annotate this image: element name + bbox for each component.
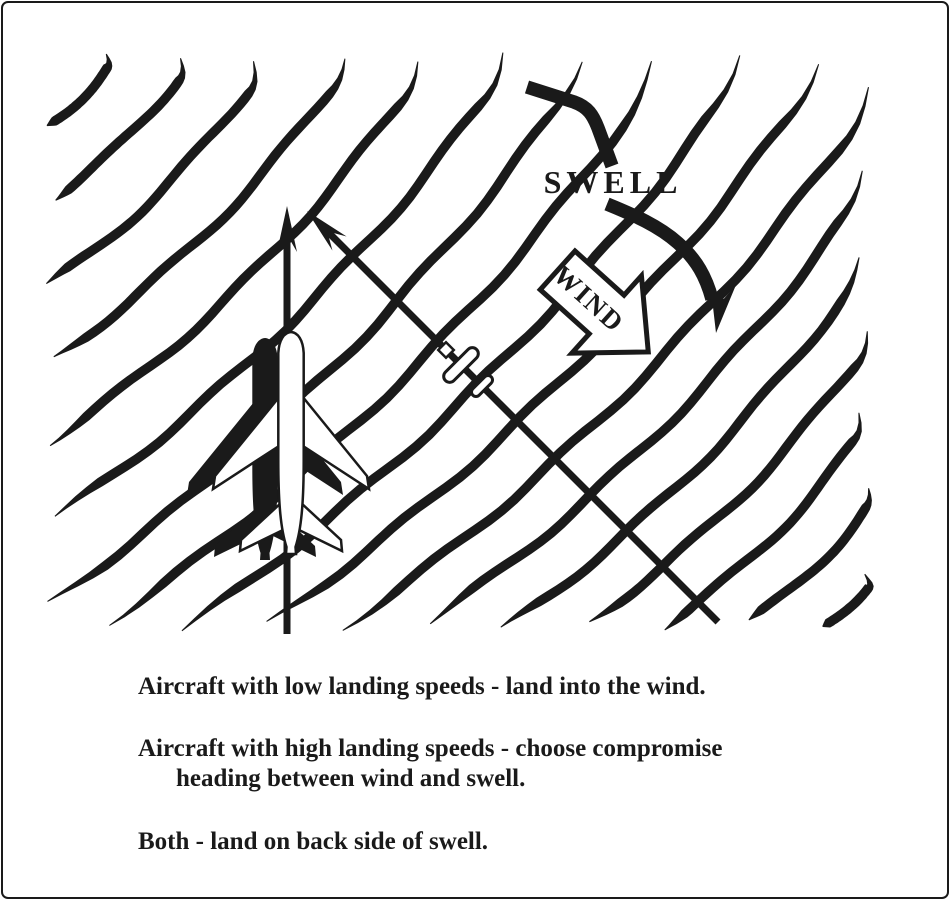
ditching-diagram-page: SWELL WIND <box>0 0 951 901</box>
swell-line <box>50 62 419 447</box>
caption-low-speed: Aircraft with low landing speeds - land … <box>138 672 838 702</box>
swell-line <box>822 574 873 628</box>
swell-label: SWELL <box>544 164 683 200</box>
caption-high-speed-line2: heading between wind and swell. <box>176 764 838 794</box>
swell-line <box>47 54 113 126</box>
caption-both: Both - land on back side of swell. <box>138 827 838 857</box>
caption-high-speed: Aircraft with high landing speeds - choo… <box>138 734 838 794</box>
swell-pattern <box>46 53 874 632</box>
swell-line <box>46 61 258 284</box>
caption-block: Aircraft with low landing speeds - land … <box>138 672 838 857</box>
caption-high-speed-line1: Aircraft with high landing speeds - choo… <box>138 735 723 762</box>
